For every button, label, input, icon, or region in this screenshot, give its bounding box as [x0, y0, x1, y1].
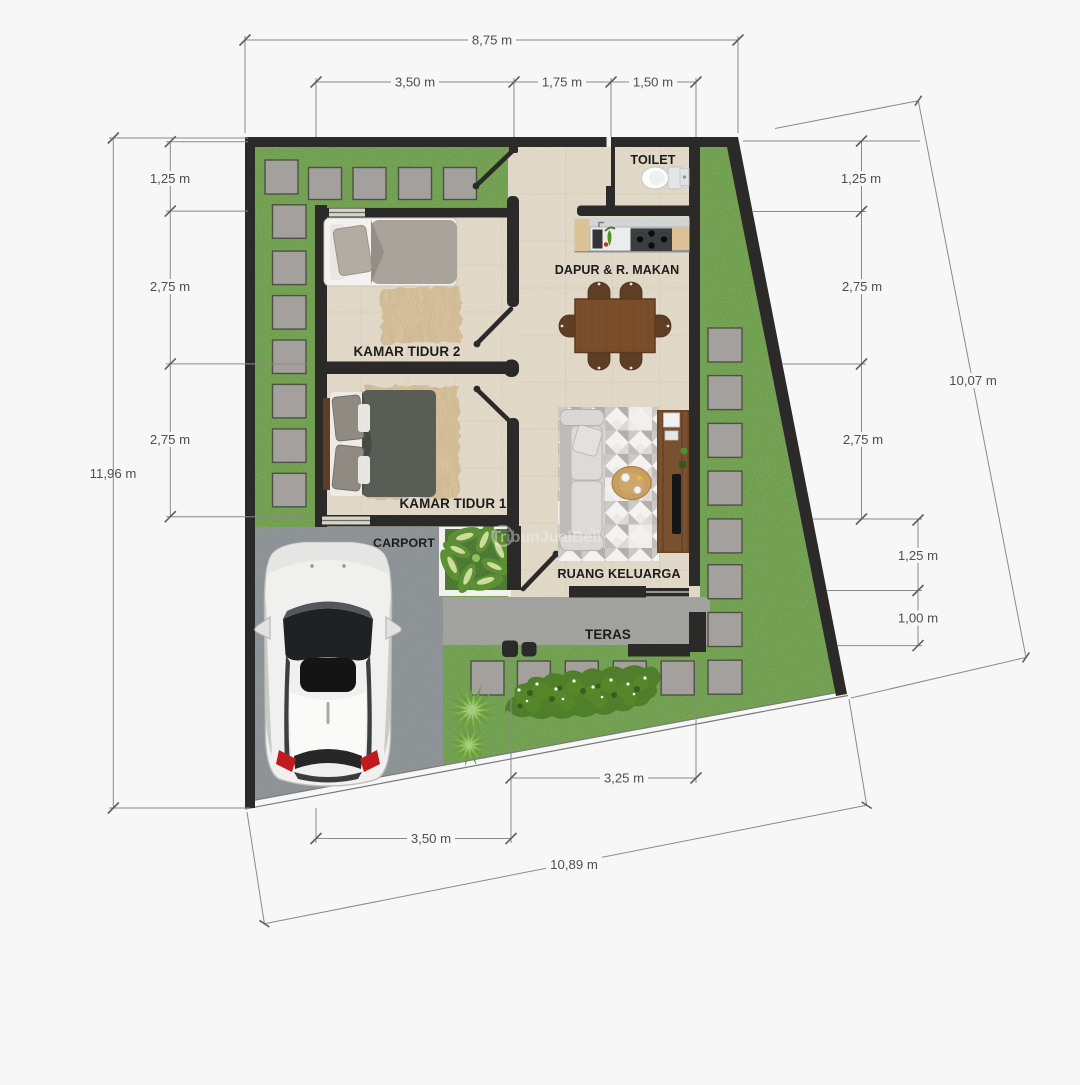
svg-text:®: ® — [590, 526, 596, 534]
svg-text:KAMAR TIDUR 1: KAMAR TIDUR 1 — [400, 496, 507, 511]
svg-text:TOILET: TOILET — [630, 153, 675, 167]
svg-text:DAPUR & R. MAKAN: DAPUR & R. MAKAN — [555, 263, 680, 277]
svg-text:2,75 m: 2,75 m — [843, 432, 883, 447]
svg-text:1,75 m: 1,75 m — [542, 75, 582, 90]
svg-text:1,00 m: 1,00 m — [898, 611, 938, 626]
svg-text:3,50 m: 3,50 m — [411, 831, 451, 846]
svg-text:10,89 m: 10,89 m — [550, 857, 598, 872]
svg-text:2,75 m: 2,75 m — [150, 432, 190, 447]
svg-text:TERAS: TERAS — [585, 627, 631, 642]
svg-text:1,25 m: 1,25 m — [150, 171, 190, 186]
svg-text:CARPORT: CARPORT — [373, 536, 435, 550]
svg-text:1,25 m: 1,25 m — [841, 171, 881, 186]
svg-text:1,50 m: 1,50 m — [633, 75, 673, 90]
svg-text:RUANG KELUARGA: RUANG KELUARGA — [557, 567, 680, 581]
svg-text:3,50 m: 3,50 m — [395, 75, 435, 90]
svg-text:2,75 m: 2,75 m — [150, 279, 190, 294]
svg-text:TribunJualBeli: TribunJualBeli — [491, 529, 601, 546]
svg-text:8,75 m: 8,75 m — [472, 33, 512, 48]
svg-text:2,75 m: 2,75 m — [842, 279, 882, 294]
svg-text:10,07 m: 10,07 m — [949, 373, 997, 388]
svg-text:KAMAR TIDUR 2: KAMAR TIDUR 2 — [354, 344, 461, 359]
svg-text:3,25 m: 3,25 m — [604, 771, 644, 786]
svg-text:1,25 m: 1,25 m — [898, 548, 938, 563]
svg-text:11,96 m: 11,96 m — [90, 466, 137, 481]
